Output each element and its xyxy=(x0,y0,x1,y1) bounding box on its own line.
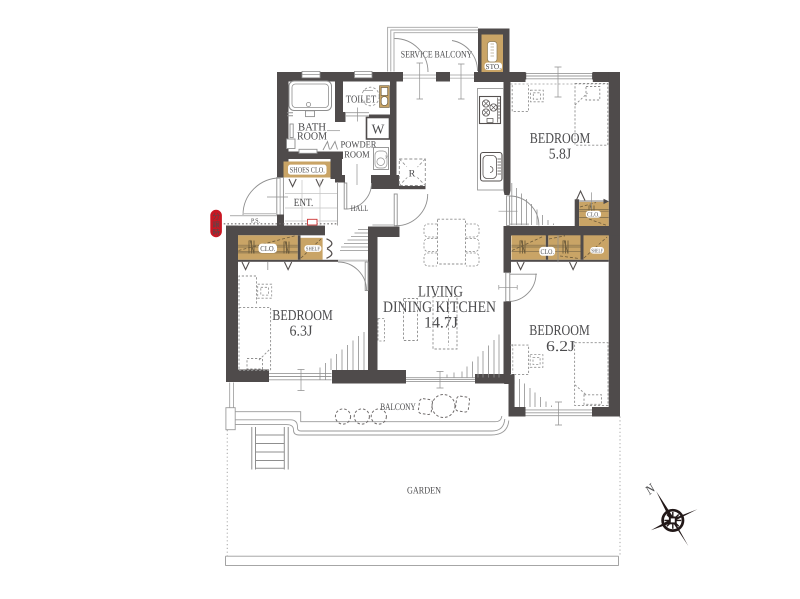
svg-text:BALCONY: BALCONY xyxy=(380,402,416,413)
svg-text:BEDROOM: BEDROOM xyxy=(272,308,333,324)
svg-text:ROOM: ROOM xyxy=(344,151,370,161)
svg-text:5.8J: 5.8J xyxy=(549,146,572,162)
svg-text:TOILET: TOILET xyxy=(346,95,377,106)
svg-text:SERVICE BALCONY: SERVICE BALCONY xyxy=(401,50,473,61)
svg-text:CLO.: CLO. xyxy=(260,244,275,253)
svg-text:ENT.: ENT. xyxy=(294,197,314,209)
svg-text:ROOM: ROOM xyxy=(297,130,327,142)
svg-text:6.2J: 6.2J xyxy=(546,339,575,355)
svg-text:14.7J: 14.7J xyxy=(424,315,458,332)
svg-text:SHOES CLO.: SHOES CLO. xyxy=(290,166,325,175)
svg-text:CLO.: CLO. xyxy=(540,248,554,256)
svg-text:SHELF: SHELF xyxy=(591,248,603,254)
svg-text:GARDEN: GARDEN xyxy=(407,485,441,496)
svg-text:SHELF: SHELF xyxy=(306,247,320,253)
svg-text:HALL: HALL xyxy=(351,203,369,213)
svg-text:6.3J: 6.3J xyxy=(290,324,313,340)
svg-text:POWDER: POWDER xyxy=(341,140,378,150)
svg-text:BEDROOM: BEDROOM xyxy=(529,323,590,339)
svg-text:時: 時 xyxy=(212,228,220,237)
svg-text:BEDROOM: BEDROOM xyxy=(530,131,591,147)
svg-text:W: W xyxy=(372,122,385,137)
svg-text:CLO.: CLO. xyxy=(587,212,600,219)
svg-text:R: R xyxy=(409,169,416,180)
svg-text:P.S.: P.S. xyxy=(251,217,261,224)
svg-text:STO.: STO. xyxy=(486,62,502,71)
